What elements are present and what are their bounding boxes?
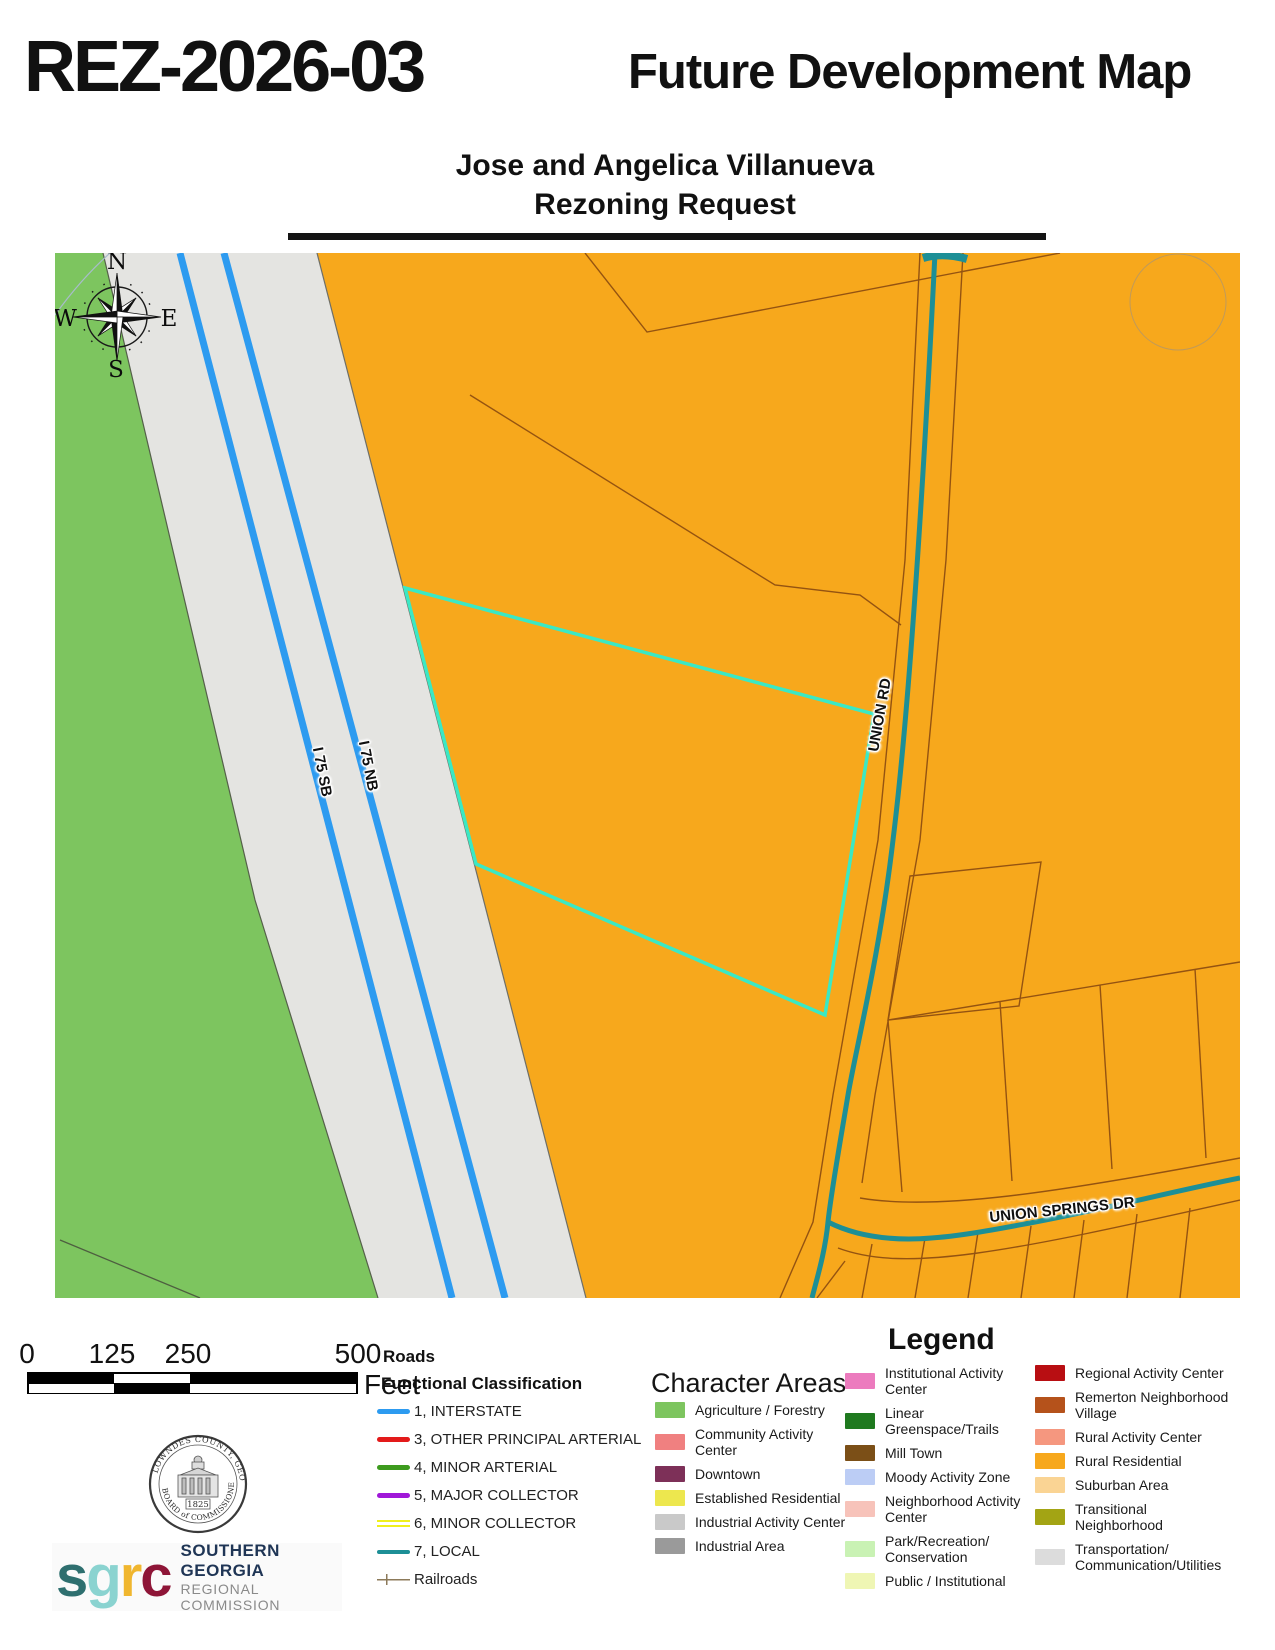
scale-label-500: 500 <box>335 1338 382 1370</box>
sgrc-letter: g <box>86 1544 119 1609</box>
legend-label: Suburban Area <box>1075 1477 1235 1493</box>
roads-legend-item: 4, MINOR ARTERIAL <box>377 1458 641 1477</box>
legend-item: Institutional Activity Center <box>845 1365 1050 1397</box>
legend-color-swatch <box>1035 1509 1065 1525</box>
roads-legend-item: 3, OTHER PRINCIPAL ARTERIAL <box>377 1430 641 1449</box>
legend-item: Moody Activity Zone <box>845 1469 1050 1485</box>
legend-label: Regional Activity Center <box>1075 1365 1235 1381</box>
area-label: Established Residential <box>695 1490 847 1506</box>
compass-e-label: E <box>161 306 178 332</box>
roads-legend-item: 5, MAJOR COLLECTOR <box>377 1486 641 1505</box>
seal-year: 1825 <box>187 1500 209 1510</box>
area-color-swatch <box>655 1490 685 1506</box>
union-rd-top-stub <box>923 255 967 259</box>
scale-label-125: 125 <box>89 1338 136 1370</box>
legend-label: Public / Institutional <box>885 1573 1037 1589</box>
road-line-swatch <box>377 1437 410 1442</box>
legend-color-swatch <box>845 1373 875 1389</box>
area-label: Agriculture / Forestry <box>695 1402 847 1418</box>
legend-color-swatch <box>845 1541 875 1557</box>
area-color-swatch <box>655 1466 685 1482</box>
road-line-swatch <box>377 1574 410 1585</box>
legend-item: Regional Activity Center <box>1035 1365 1250 1381</box>
character-area-item: Downtown <box>655 1466 855 1482</box>
character-area-item: Established Residential <box>655 1490 855 1506</box>
road-line-swatch <box>377 1520 410 1527</box>
legend-item: Remerton Neighborhood Village <box>1035 1389 1250 1421</box>
road-legend-label: Railroads <box>414 1571 477 1588</box>
compass-w-label: W <box>55 306 77 332</box>
legend-label: Rural Residential <box>1075 1453 1235 1469</box>
case-number-title: REZ-2026-03 <box>24 26 423 108</box>
character-area-item: Industrial Area <box>655 1538 855 1554</box>
legend-item: Suburban Area <box>1035 1477 1250 1493</box>
character-areas-list: Agriculture / Forestry Community Activit… <box>655 1402 855 1554</box>
scale-bar <box>27 1372 358 1394</box>
road-line-swatch <box>377 1409 410 1414</box>
lowndes-county-seal: LOWNDES COUNTY, GEORGIA BOARD of COMMISS… <box>147 1433 249 1535</box>
legend-label: Moody Activity Zone <box>885 1469 1037 1485</box>
road-line-swatch <box>377 1465 410 1470</box>
legend-color-swatch <box>1035 1453 1065 1469</box>
map-canvas: N S W E I 75 SB I 75 NB UNION RD UNION S… <box>55 253 1240 1298</box>
subtitle-underline <box>288 233 1046 240</box>
subtitle-line1: Jose and Angelica Villanueva <box>270 146 1060 185</box>
legend-item: Park/Recreation/ Conservation <box>845 1533 1050 1565</box>
zoning-map: N S W E <box>55 253 1240 1298</box>
sgrc-name-line1: SOUTHERN GEORGIA <box>181 1541 342 1581</box>
roads-legend-item: Railroads <box>377 1570 641 1589</box>
legend-color-swatch <box>1035 1477 1065 1493</box>
roads-legend-item: 6, MINOR COLLECTOR <box>377 1514 641 1533</box>
area-label: Downtown <box>695 1466 847 1482</box>
character-area-item: Industrial Activity Center <box>655 1514 855 1530</box>
character-areas-title: Character Areas <box>651 1368 846 1399</box>
legend-item: Rural Activity Center <box>1035 1429 1250 1445</box>
legend-item: Public / Institutional <box>845 1573 1050 1589</box>
legend-item: Neighborhood Activity Center <box>845 1493 1050 1525</box>
legend-color-swatch <box>845 1445 875 1461</box>
legend-color-swatch <box>1035 1429 1065 1445</box>
legend-label: Rural Activity Center <box>1075 1429 1235 1445</box>
subtitle: Jose and Angelica Villanueva Rezoning Re… <box>270 146 1060 224</box>
functional-classification-title: Functional Classification <box>381 1374 582 1394</box>
sgrc-letter: s <box>56 1544 86 1609</box>
road-legend-label: 3, OTHER PRINCIPAL ARTERIAL <box>414 1431 641 1448</box>
road-legend-label: 6, MINOR COLLECTOR <box>414 1515 576 1532</box>
area-color-swatch <box>655 1402 685 1418</box>
legend-label: Neighborhood Activity Center <box>885 1493 1037 1525</box>
road-legend-label: 4, MINOR ARTERIAL <box>414 1459 557 1476</box>
legend-color-swatch <box>845 1501 875 1517</box>
legend-color-swatch <box>845 1573 875 1589</box>
roads-legend-list: 1, INTERSTATE 3, OTHER PRINCIPAL ARTERIA… <box>377 1402 641 1589</box>
legend-color-swatch <box>845 1469 875 1485</box>
character-area-item: Community Activity Center <box>655 1426 855 1458</box>
sgrc-wordmark: sgrc <box>56 1548 171 1606</box>
legend-color-swatch <box>1035 1549 1065 1565</box>
area-label: Community Activity Center <box>695 1426 847 1458</box>
sgrc-name-line2: REGIONAL COMMISSION <box>181 1581 342 1613</box>
sgrc-letter: c <box>140 1544 170 1609</box>
legend-item: Linear Greenspace/Trails <box>845 1405 1050 1437</box>
legend-item: Transportation/ Communication/Utilities <box>1035 1541 1250 1573</box>
sgrc-logo: sgrc SOUTHERN GEORGIA REGIONAL COMMISSIO… <box>52 1543 342 1611</box>
legend-color-swatch <box>1035 1365 1065 1381</box>
legend-label: Linear Greenspace/Trails <box>885 1405 1037 1437</box>
area-color-swatch <box>655 1434 685 1450</box>
road-legend-label: 5, MAJOR COLLECTOR <box>414 1487 579 1504</box>
scale-label-0: 0 <box>19 1338 35 1370</box>
compass-n-label: N <box>107 253 127 275</box>
legend-label: Remerton Neighborhood Village <box>1075 1389 1235 1421</box>
roads-legend-title: Roads <box>383 1347 435 1367</box>
roads-legend-item: 7, LOCAL <box>377 1542 641 1561</box>
roads-legend-item: 1, INTERSTATE <box>377 1402 641 1421</box>
legend-label: Transitional Neighborhood <box>1075 1501 1235 1533</box>
legend-label: Institutional Activity Center <box>885 1365 1037 1397</box>
scale-label-250: 250 <box>165 1338 212 1370</box>
road-line-swatch <box>377 1493 410 1498</box>
compass-s-label: S <box>108 357 124 383</box>
character-area-item: Agriculture / Forestry <box>655 1402 855 1418</box>
road-legend-label: 7, LOCAL <box>414 1543 480 1560</box>
legend-item: Rural Residential <box>1035 1453 1250 1469</box>
sgrc-letter: r <box>120 1544 141 1609</box>
area-color-swatch <box>655 1538 685 1554</box>
legend-item: Transitional Neighborhood <box>1035 1501 1250 1533</box>
area-color-swatch <box>655 1514 685 1530</box>
page-title: Future Development Map <box>628 44 1191 100</box>
area-label: Industrial Area <box>695 1538 847 1554</box>
area-label: Industrial Activity Center <box>695 1514 847 1530</box>
legend-column-1: Institutional Activity Center Linear Gre… <box>845 1365 1050 1589</box>
subtitle-line2: Rezoning Request <box>270 185 1060 224</box>
road-line-swatch <box>377 1550 410 1554</box>
legend-title: Legend <box>888 1323 995 1357</box>
legend-column-2: Regional Activity Center Remerton Neighb… <box>1035 1365 1250 1573</box>
legend-color-swatch <box>1035 1397 1065 1413</box>
legend-label: Mill Town <box>885 1445 1037 1461</box>
legend-color-swatch <box>845 1413 875 1429</box>
road-legend-label: 1, INTERSTATE <box>414 1403 522 1420</box>
page: { "header": { "case_number": "REZ-2026-0… <box>0 0 1275 1650</box>
legend-label: Transportation/ Communication/Utilities <box>1075 1541 1235 1573</box>
legend-item: Mill Town <box>845 1445 1050 1461</box>
legend-label: Park/Recreation/ Conservation <box>885 1533 1037 1565</box>
